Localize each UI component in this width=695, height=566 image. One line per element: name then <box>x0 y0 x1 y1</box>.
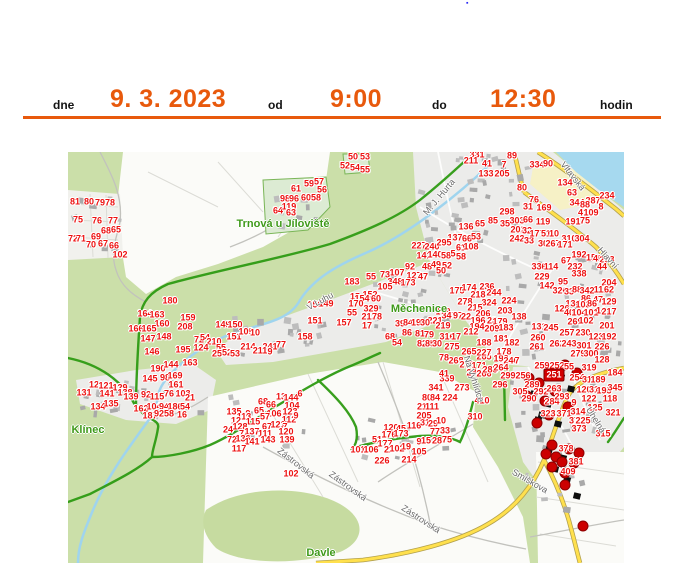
house-number-label: 171 <box>557 241 572 250</box>
house-number-label: 66 <box>523 216 533 225</box>
house-number-label: 338 <box>571 270 586 279</box>
house-number-label: 151 <box>307 317 322 326</box>
house-number-label: 57 <box>260 413 270 422</box>
house-number-label: 211 <box>253 347 268 356</box>
house-number-label: 173 <box>393 430 408 439</box>
house-number-label: 192 <box>601 333 616 342</box>
house-number-label: 102 <box>112 251 127 260</box>
house-number-label: 58 <box>164 410 174 419</box>
house-number-label: 173 <box>400 279 415 288</box>
house-number-label: 53 <box>230 350 240 359</box>
house-number-label: 81 <box>70 198 80 207</box>
place-name-label: Davle <box>306 547 335 559</box>
house-number-label: 117 <box>232 445 247 454</box>
house-number-label: 5 <box>450 250 455 259</box>
place-name-label: Klínec <box>71 424 104 436</box>
house-number-label: 9 <box>293 412 298 421</box>
house-number-label: 157 <box>336 319 351 328</box>
house-number-label: 191 <box>565 218 580 227</box>
house-number-label: 310 <box>467 413 482 422</box>
house-number-label: 80 <box>84 198 94 207</box>
house-number-label: 188 <box>476 339 491 348</box>
house-number-label: 50 <box>436 267 446 276</box>
house-number-label: 180 <box>162 297 177 306</box>
label-dne: dne <box>53 98 74 112</box>
house-number-label: 19 <box>401 443 411 452</box>
house-number-label: 25 <box>212 350 222 359</box>
house-number-label: 141 <box>99 390 114 399</box>
house-number-label: 242 <box>509 235 524 244</box>
house-number-label: 183 <box>344 278 359 287</box>
house-number-label: 234 <box>599 192 614 201</box>
house-number-label: 108 <box>463 243 478 252</box>
house-number-label: 189 <box>590 376 605 385</box>
house-number-label: 257 <box>559 329 574 338</box>
house-number-label: 203 <box>497 307 512 316</box>
house-number-label: 208 <box>177 323 192 332</box>
house-number-label: 139 <box>123 393 138 402</box>
house-number-label: 192 <box>571 251 586 260</box>
house-number-label: 7 <box>514 357 519 366</box>
date-value: 9. 3. 2023 <box>110 85 226 114</box>
house-number-label: 224 <box>442 394 457 403</box>
house-number-label: 128 <box>594 356 609 365</box>
house-number-label: 227 <box>476 349 491 358</box>
outage-map: 8180797875767768657271697067661025957615… <box>68 152 624 563</box>
house-number-label: 58 <box>456 253 466 262</box>
house-number-label: 76 <box>92 217 102 226</box>
house-number-label: 184 <box>607 369 622 378</box>
house-number-label: 10 <box>250 329 260 338</box>
house-number-label: 293 <box>554 393 569 402</box>
house-number-label: 102 <box>283 470 298 479</box>
street-name-label: Zástrovská <box>327 469 368 503</box>
house-number-label: 53 <box>360 153 370 162</box>
house-number-label: 373 <box>571 425 586 434</box>
outage-marker <box>578 521 589 532</box>
house-number-label: 209 <box>484 325 499 334</box>
house-number-label: 77 <box>276 341 286 350</box>
house-number-label: 78 <box>105 199 115 208</box>
house-number-label: 378 <box>558 445 573 454</box>
outage-notice-page: ▪ dne 9. 3. 2023 od 9:00 do 12:30 hodin <box>0 0 695 566</box>
house-number-label: 55 <box>347 309 357 318</box>
house-number-label: 124 <box>193 344 208 353</box>
house-number-label: 54 <box>350 164 360 173</box>
house-number-label: 15 <box>421 437 431 446</box>
house-number-label: 65 <box>111 226 121 235</box>
house-number-label: 75 <box>580 217 590 226</box>
house-number-label: 296 <box>492 381 507 390</box>
house-number-label: 163 <box>182 359 197 368</box>
outage-marker <box>547 462 558 473</box>
house-number-label: 59 <box>304 180 314 189</box>
house-number-label: 244 <box>486 289 501 298</box>
house-number-label: 138 <box>511 313 526 322</box>
house-number-label: 79 <box>95 199 105 208</box>
house-number-label: 295 <box>436 239 451 248</box>
street-name-label: M. J. Hurta <box>421 177 457 217</box>
house-number-label: 409 <box>560 468 575 477</box>
house-number-label: 115 <box>246 418 261 427</box>
house-number-label: 217 <box>601 308 616 317</box>
map-annotations: 8180797875767768657271697067661025957615… <box>68 152 624 563</box>
house-number-label: 245 <box>543 324 558 333</box>
house-number-label: 63 <box>286 209 296 218</box>
house-number-label: 133 <box>478 170 493 179</box>
house-number-label: 212 <box>463 328 478 337</box>
building-marker <box>554 420 562 428</box>
label-do: do <box>432 98 447 112</box>
house-number-label: 63 <box>567 189 577 198</box>
label-hodin: hodin <box>600 98 633 112</box>
house-number-label: 205 <box>416 412 431 421</box>
house-number-label: 55 <box>366 273 376 282</box>
house-number-label: 58 <box>311 194 321 203</box>
house-number-label: 211 <box>464 157 479 166</box>
house-number-label: 165 <box>141 325 156 334</box>
house-number-label: 30 <box>420 319 430 328</box>
house-number-label: 92 <box>154 410 164 419</box>
house-number-label: 90 <box>543 160 553 169</box>
house-number-label: 41 <box>439 370 449 379</box>
house-number-label: 219 <box>435 322 450 331</box>
house-number-label: 10 <box>436 417 446 426</box>
house-number-label: 80 <box>517 184 527 193</box>
house-number-label: 135 <box>103 400 118 409</box>
house-number-label: 17 <box>451 333 461 342</box>
house-number-label: 76 <box>164 390 174 399</box>
house-number-label: 10 <box>549 230 559 239</box>
building-marker <box>573 492 581 500</box>
house-number-label: 119 <box>536 218 551 227</box>
house-number-label: 54 <box>392 339 402 348</box>
house-number-label: 290 <box>521 395 536 404</box>
house-number-label: 183 <box>498 324 513 333</box>
house-number-label: 31 <box>523 203 533 212</box>
house-number-label: 195 <box>175 346 190 355</box>
house-number-label: 214 <box>401 456 416 465</box>
house-number-label: 70 <box>86 241 96 250</box>
house-number-label: 55 <box>564 363 574 372</box>
house-number-label: 67 <box>98 240 108 249</box>
outage-marker <box>532 418 543 429</box>
house-number-label: 114 <box>544 263 559 272</box>
house-number-label: 275 <box>444 343 459 352</box>
label-od: od <box>268 98 283 112</box>
house-number-label: 205 <box>494 170 509 179</box>
house-number-label: 144 <box>163 361 178 370</box>
house-number-label: 33 <box>440 427 450 436</box>
house-number-label: 8 <box>598 203 603 212</box>
house-number-label: 158 <box>297 333 312 342</box>
house-number-label: 84 <box>430 394 440 403</box>
house-number-label: 160 <box>154 320 169 329</box>
house-number-label: 131 <box>76 389 91 398</box>
house-number-label: 224 <box>501 297 516 306</box>
house-number-label: 75 <box>73 216 83 225</box>
street-name-label: Smíškova <box>510 467 549 495</box>
house-number-label: 243 <box>561 340 576 349</box>
house-number-label: 118 <box>603 395 618 404</box>
house-number-label: 62 <box>604 286 614 295</box>
house-number-label: 261 <box>529 343 544 352</box>
house-number-label: 201 <box>599 322 614 331</box>
house-number-label: 321 <box>605 409 620 418</box>
house-number-label: 28 <box>432 437 442 446</box>
house-number-label: 60 <box>371 295 381 304</box>
street-name-label: Zástrovská <box>400 503 442 535</box>
house-number-label: 30 <box>432 340 442 349</box>
outage-marker <box>560 480 571 491</box>
house-number-label: 55 <box>360 166 370 175</box>
house-number-label: 115 <box>150 393 165 402</box>
house-number-label: 78 <box>372 313 382 322</box>
house-number-label: 9 <box>267 348 272 357</box>
house-number-label: 319 <box>581 364 596 373</box>
house-number-label: 77 <box>430 428 440 437</box>
house-number-label: 6 <box>297 390 302 399</box>
house-number-label: 68 <box>101 227 111 236</box>
house-number-label: 106 <box>363 446 378 455</box>
house-number-label: 16 <box>177 411 187 420</box>
orange-divider-line <box>23 116 661 119</box>
blue-artifact-mark: ▪ <box>466 0 468 7</box>
house-number-label: 226 <box>374 457 389 466</box>
house-number-label: 89 <box>507 152 517 161</box>
house-number-label: 78 <box>439 354 449 363</box>
house-number-label: 139 <box>279 436 294 445</box>
house-number-label: 146 <box>144 348 159 357</box>
house-number-label: 143 <box>260 436 275 445</box>
house-number-label: 61 <box>291 185 301 194</box>
house-number-label: 169 <box>536 204 551 213</box>
house-number-label: 44 <box>597 263 607 272</box>
house-number-label: 65 <box>475 220 485 229</box>
house-number-label: 323 <box>540 410 555 419</box>
house-number-label: 324 <box>481 299 496 308</box>
house-number-label: 53 <box>471 233 481 242</box>
house-number-label: 71 <box>76 235 86 244</box>
house-number-label: 52 <box>340 162 350 171</box>
house-number-label: 273 <box>454 384 469 393</box>
time-from-value: 9:00 <box>330 85 382 114</box>
house-number-label: 381 <box>568 458 583 467</box>
highlighted-house-number: 251 <box>543 369 564 382</box>
house-number-label: 75 <box>442 436 452 445</box>
house-number-label: 105 <box>377 283 392 292</box>
house-number-label: 60 <box>301 194 311 203</box>
house-number-label: 136 <box>458 223 473 232</box>
house-number-label: 341 <box>428 384 443 393</box>
house-number-label: 178 <box>496 348 511 357</box>
house-number-label: 304 <box>574 235 589 244</box>
house-number-label: 41 <box>482 160 492 169</box>
house-number-label: 86 <box>402 329 412 338</box>
house-number-label: 85 <box>488 217 498 226</box>
time-to-value: 12:30 <box>490 85 556 114</box>
house-number-label: 47 <box>418 273 428 282</box>
place-name-label: Trnová u Jíloviště <box>237 218 330 230</box>
house-number-label: 145 <box>142 375 157 384</box>
house-number-label: 147 <box>140 335 155 344</box>
house-number-label: 141 <box>244 438 259 447</box>
house-number-label: 22 <box>461 313 471 322</box>
house-number-label: 148 <box>156 333 171 342</box>
house-number-label: 17 <box>362 322 372 331</box>
house-number-label: 102 <box>578 317 593 326</box>
place-name-label: Měchenice <box>391 303 447 315</box>
house-number-label: 345 <box>607 384 622 393</box>
